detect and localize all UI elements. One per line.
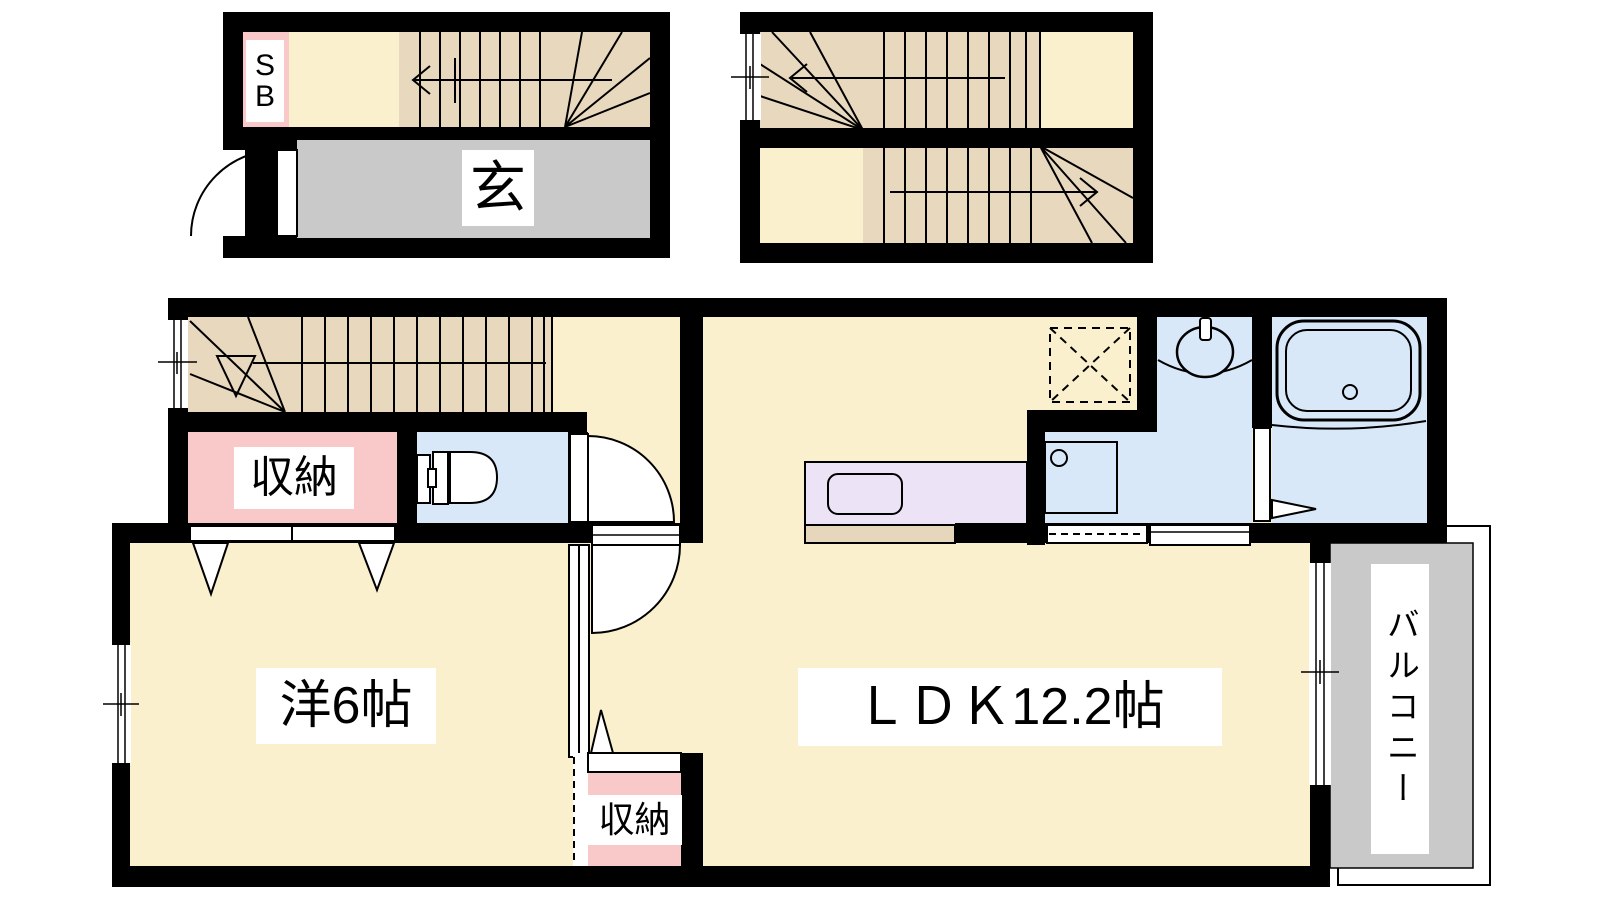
counter-base bbox=[805, 525, 955, 543]
door-leaf bbox=[1254, 428, 1270, 521]
refrigerator-space-icon bbox=[1050, 328, 1130, 402]
lower-storage-label: 収納 bbox=[587, 795, 682, 845]
bathtub-icon bbox=[1272, 321, 1426, 429]
ldk-label: ＬＤＫ12.2帖 bbox=[798, 668, 1222, 746]
staircase-block bbox=[731, 12, 1153, 263]
door-leaf bbox=[570, 434, 588, 522]
bathroom bbox=[1272, 317, 1427, 523]
sliding-partition-doors-icon bbox=[569, 545, 589, 757]
balcony-label: バルコニー bbox=[1371, 564, 1429, 854]
shoe-box-label: S B bbox=[246, 40, 284, 122]
western-room-label: 洋6帖 bbox=[256, 668, 436, 744]
entry-door-leaf bbox=[277, 150, 297, 236]
entrance-label: 玄 bbox=[462, 150, 534, 226]
washing-machine-icon bbox=[1045, 442, 1117, 513]
floor-plan: S B 玄 収納 洋6帖 ＬＤＫ12.2帖 収納 バルコニー bbox=[0, 0, 1600, 900]
toilet-room bbox=[417, 432, 568, 523]
main-floor bbox=[103, 298, 1490, 887]
toilet-icon bbox=[417, 452, 497, 504]
kitchen-sink-icon bbox=[828, 474, 902, 514]
entrance-hall-floor bbox=[289, 32, 399, 127]
closet-door-leaf bbox=[588, 753, 681, 772]
sliding-door-icon bbox=[1150, 525, 1250, 545]
main-stairs bbox=[187, 317, 553, 412]
upper-storage-label: 収納 bbox=[234, 447, 354, 509]
